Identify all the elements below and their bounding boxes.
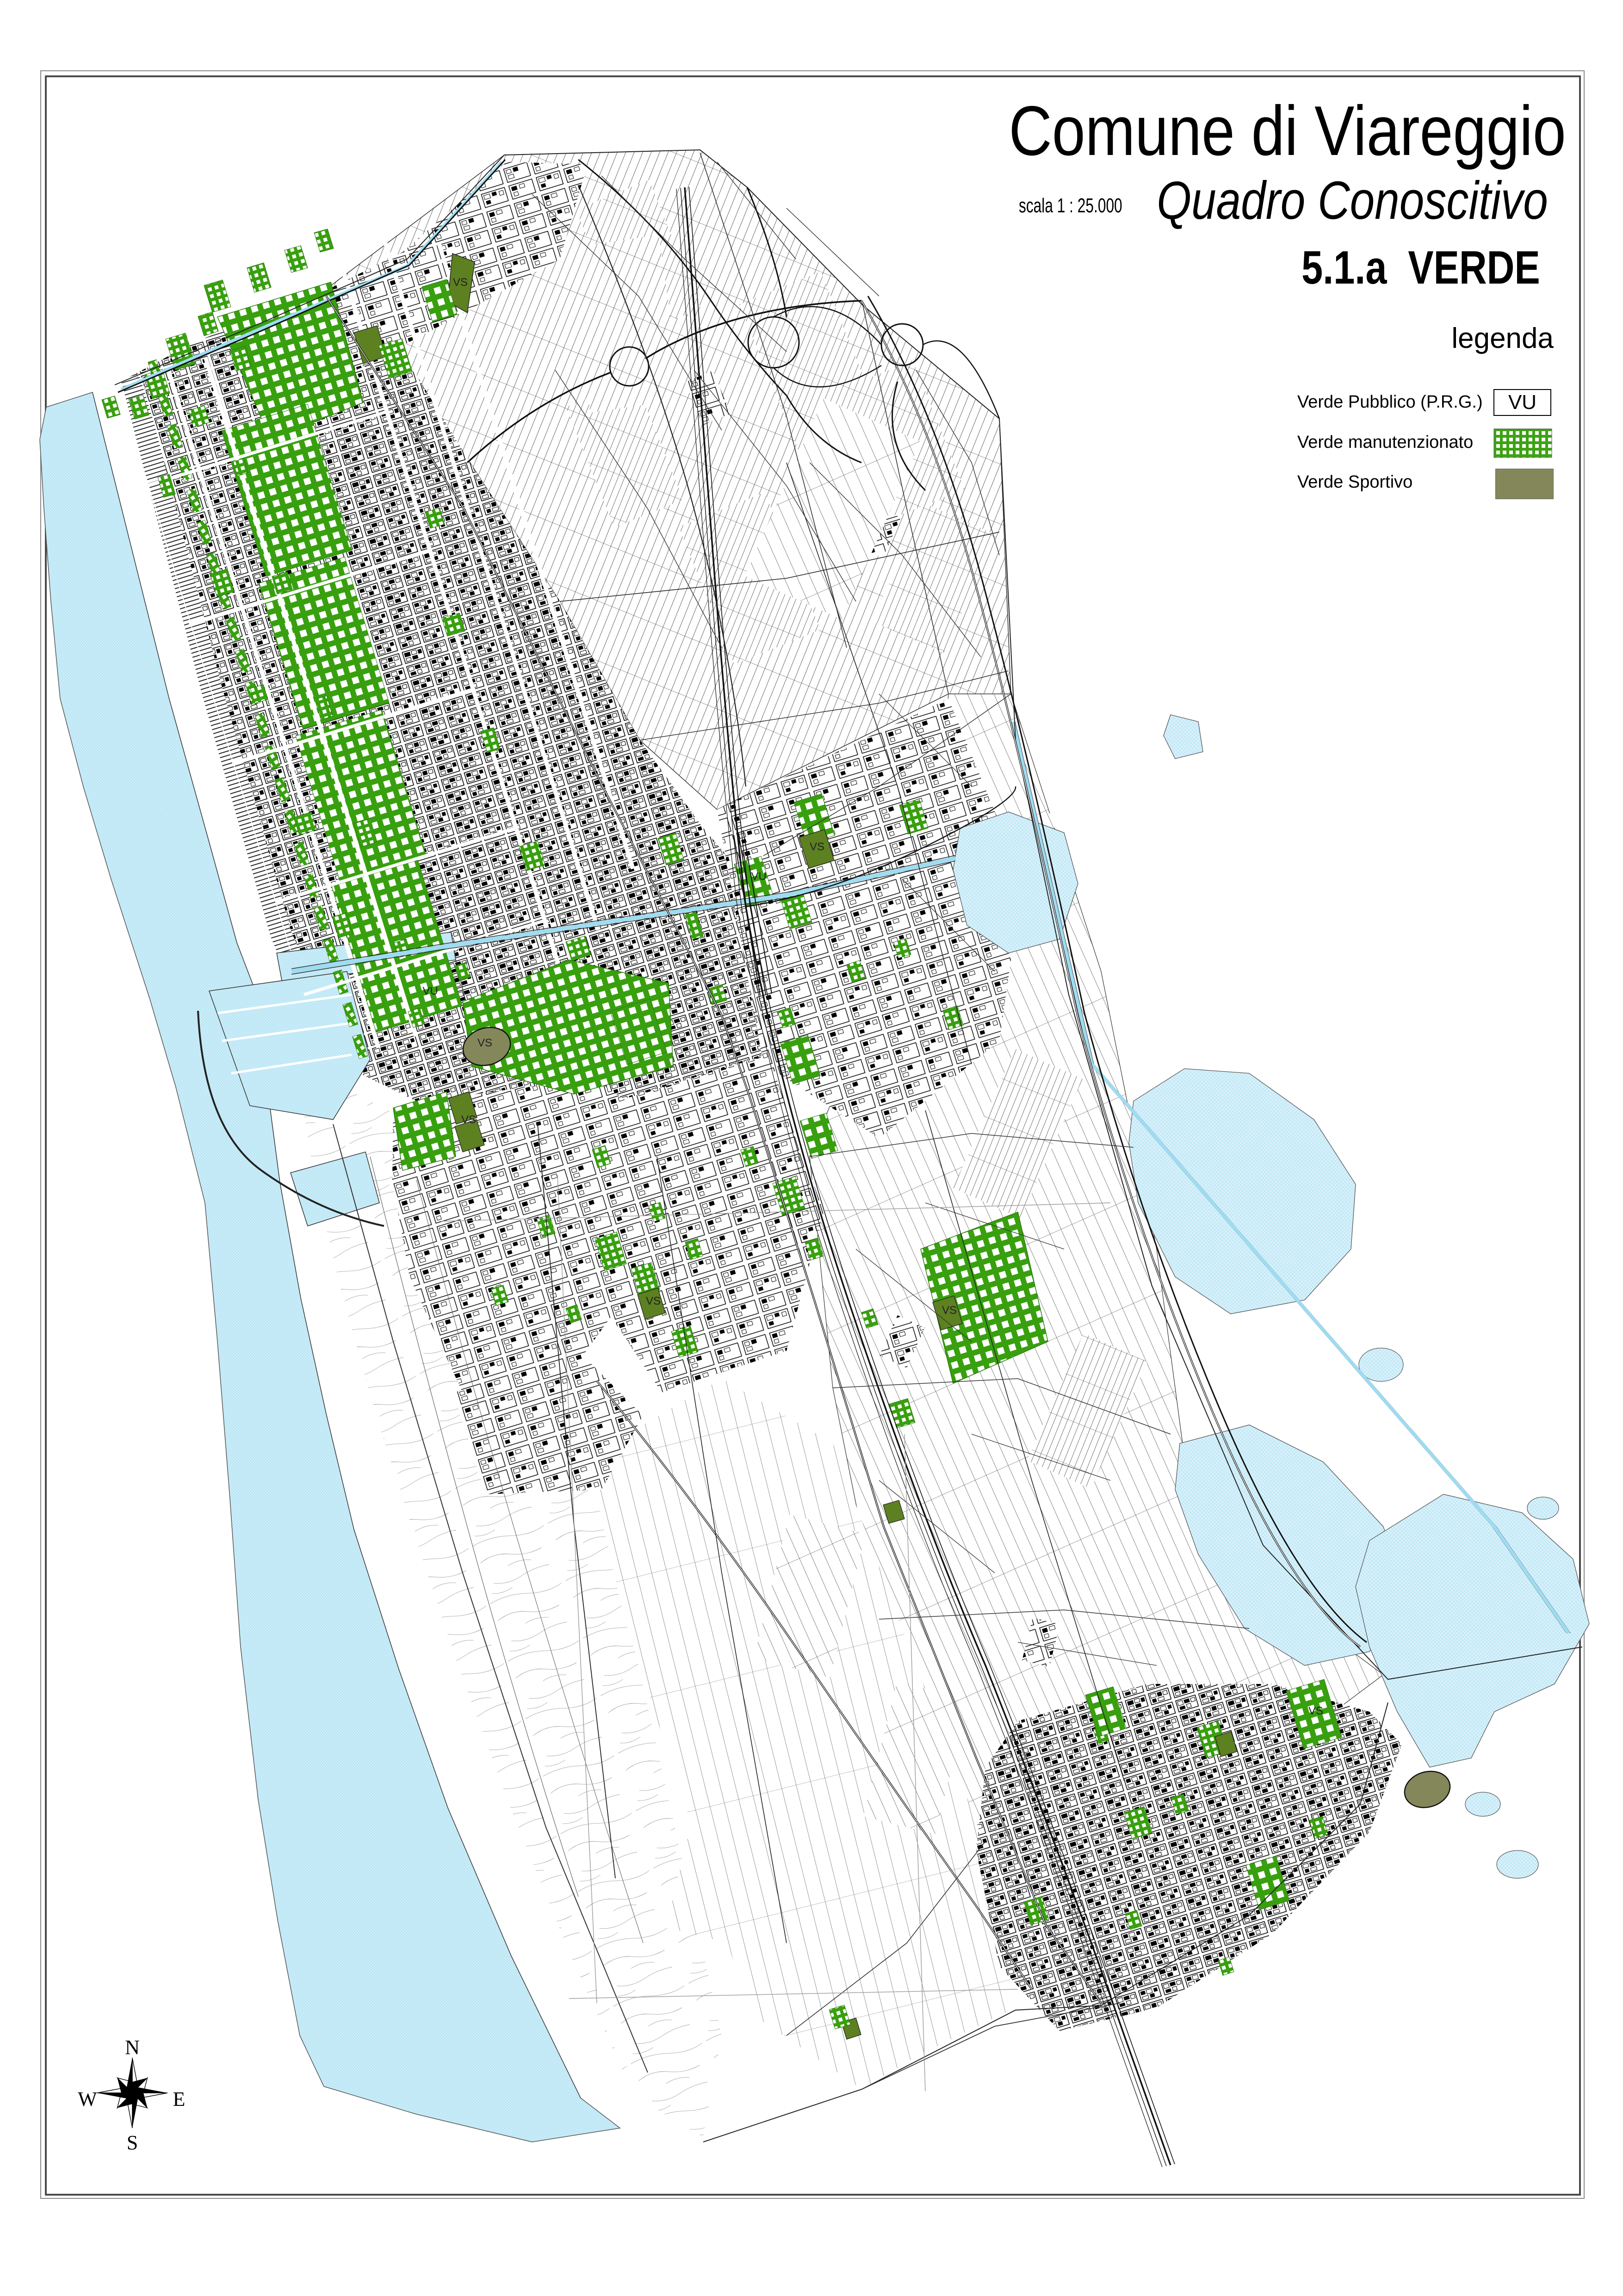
svg-text:VS: VS — [810, 841, 824, 853]
svg-text:VS: VS — [461, 1114, 476, 1126]
svg-text:S: S — [127, 2131, 138, 2154]
svg-text:VS: VS — [942, 1304, 957, 1317]
svg-text:VU: VU — [751, 870, 766, 883]
svg-text:VS: VS — [477, 1037, 492, 1049]
svg-text:N: N — [125, 2036, 140, 2059]
svg-text:VU: VU — [422, 985, 438, 997]
svg-text:W: W — [78, 2088, 97, 2110]
svg-text:VS: VS — [1308, 1705, 1323, 1717]
svg-text:E: E — [173, 2088, 186, 2110]
svg-text:VS: VS — [453, 276, 468, 289]
svg-text:VS: VS — [646, 1295, 661, 1307]
